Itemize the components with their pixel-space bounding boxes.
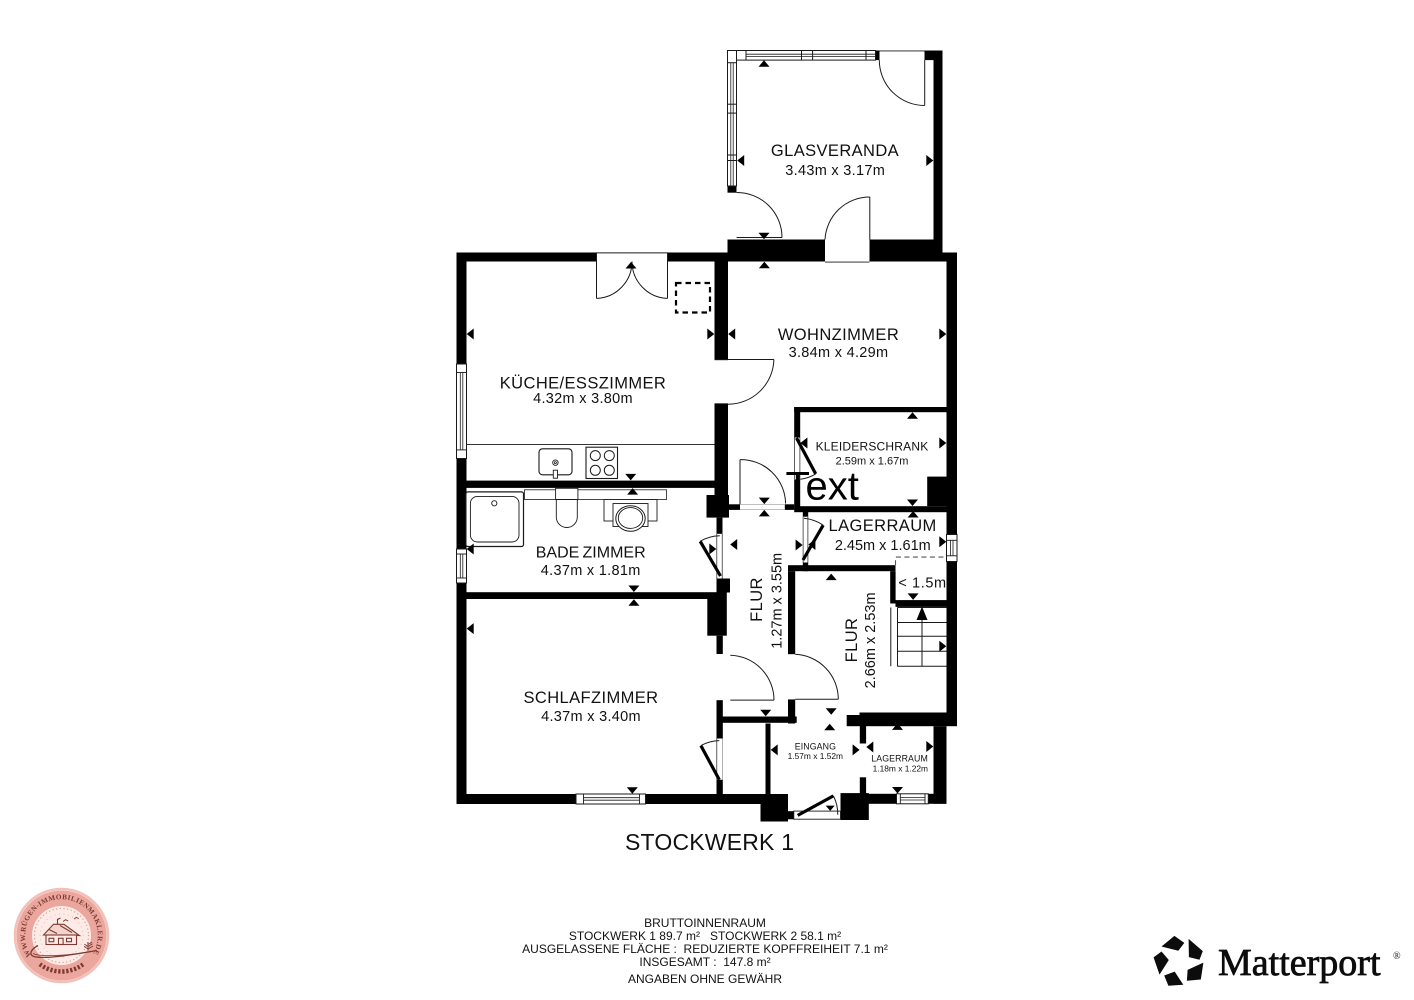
- svg-text:GLASVERANDA: GLASVERANDA: [771, 142, 899, 160]
- svg-text:1.57m x 1.52m: 1.57m x 1.52m: [788, 751, 843, 761]
- svg-text:FLUR: FLUR: [843, 618, 861, 663]
- svg-text:LAGERRAUM: LAGERRAUM: [871, 754, 928, 764]
- svg-text:1.27m x 3.55m: 1.27m x 3.55m: [769, 553, 785, 649]
- svg-text:KÜCHE/ESSZIMMER: KÜCHE/ESSZIMMER: [500, 374, 666, 392]
- svg-text:LAGERRAUM: LAGERRAUM: [829, 517, 937, 535]
- svg-text:1.18m x 1.22m: 1.18m x 1.22m: [873, 763, 928, 773]
- svg-text:STOCKWERK 1 89.7 m² STOCKWER: STOCKWERK 1 89.7 m² STOCKWERK 2 58.1 m²: [569, 929, 841, 943]
- svg-text:3.43m x 3.17m: 3.43m x 3.17m: [785, 163, 885, 179]
- svg-text:2.45m x 1.61m: 2.45m x 1.61m: [835, 538, 931, 554]
- svg-text:Matterport: Matterport: [1218, 942, 1381, 984]
- svg-text:4.37m x 3.40m: 4.37m x 3.40m: [541, 709, 641, 725]
- svg-text:ANGABEN OHNE GEWÄHR: ANGABEN OHNE GEWÄHR: [628, 972, 782, 986]
- svg-text:< 1.5m: < 1.5m: [898, 575, 946, 591]
- svg-text:4.37m x 1.81m: 4.37m x 1.81m: [541, 563, 641, 579]
- svg-text:SCHLAFZIMMER: SCHLAFZIMMER: [524, 689, 659, 707]
- svg-text:KLEIDERSCHRANK: KLEIDERSCHRANK: [816, 440, 929, 454]
- svg-text:FLUR: FLUR: [748, 577, 766, 622]
- svg-text:4.32m x 3.80m: 4.32m x 3.80m: [533, 391, 633, 407]
- svg-text:AUSGELASSENE FLÄCHE : REDUZIE: AUSGELASSENE FLÄCHE : REDUZIERTE KOPFFRE…: [522, 942, 888, 956]
- svg-text:INSGESAMT : 147.8 m²: INSGESAMT : 147.8 m²: [639, 955, 770, 969]
- svg-text:®: ®: [1393, 951, 1401, 962]
- svg-text:STOCKWERK 1: STOCKWERK 1: [625, 829, 794, 855]
- svg-text:BADE ZIMMER: BADE ZIMMER: [536, 545, 646, 562]
- svg-text:WOHNZIMMER: WOHNZIMMER: [778, 326, 899, 344]
- svg-text:2.66m x 2.53m: 2.66m x 2.53m: [863, 592, 879, 688]
- svg-text:3.84m x 4.29m: 3.84m x 4.29m: [789, 345, 889, 361]
- svg-text:Text: Text: [786, 465, 859, 509]
